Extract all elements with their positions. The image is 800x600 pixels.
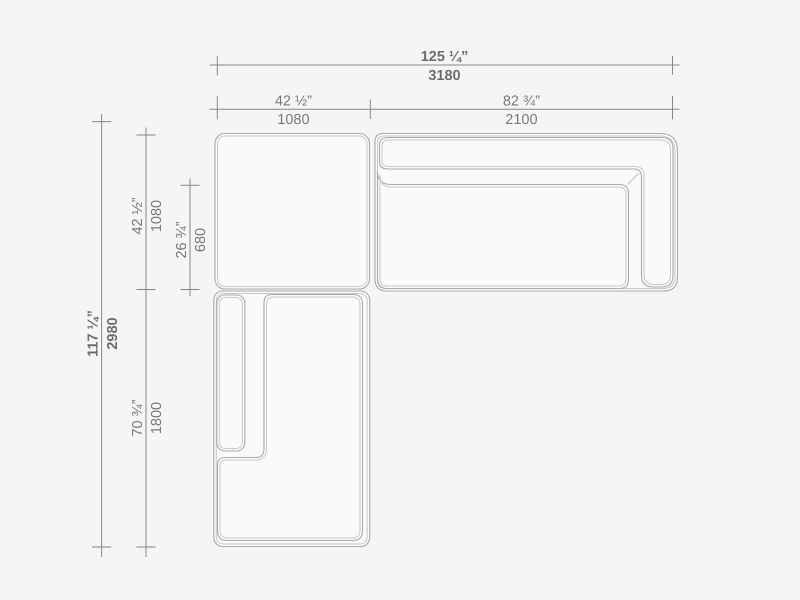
svg-text:82 ¾”: 82 ¾” [503,94,540,110]
svg-text:2980: 2980 [105,317,121,349]
svg-text:1080: 1080 [277,112,309,128]
svg-text:680: 680 [193,228,209,252]
svg-text:70 ¾”: 70 ¾” [130,399,146,436]
svg-text:117 ¼”: 117 ¼” [85,310,101,357]
svg-text:1080: 1080 [149,200,165,232]
svg-text:125 ¼”: 125 ¼” [421,49,469,65]
svg-text:2100: 2100 [505,112,537,128]
svg-text:3180: 3180 [428,68,460,84]
svg-text:26 ¾”: 26 ¾” [174,221,190,258]
svg-text:42 ½”: 42 ½” [130,197,146,234]
svg-text:1800: 1800 [149,402,165,434]
svg-text:42 ½”: 42 ½” [275,94,312,110]
